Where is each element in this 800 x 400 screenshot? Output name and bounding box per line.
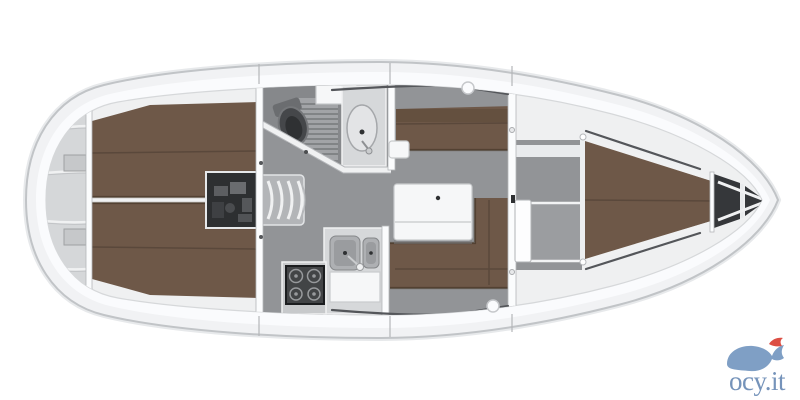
bulkhead-fitting <box>510 270 515 275</box>
salon-side-locker <box>389 141 409 158</box>
aft-door-handle-starboard <box>259 235 263 239</box>
bathroom-sink <box>347 105 377 151</box>
forward-door-latch <box>511 195 515 203</box>
anchor-bulkhead <box>710 172 714 232</box>
bulkhead-stern <box>86 88 92 312</box>
cleat-notch-starboard <box>487 300 499 312</box>
bulkhead-fitting <box>510 128 515 133</box>
berth-step <box>527 203 583 261</box>
red-fish-icon <box>769 338 783 347</box>
aft-door-handle-port <box>259 161 263 165</box>
stove <box>286 266 324 304</box>
yacht-floor-plan: ocy.it <box>0 0 800 400</box>
v-berth-trim <box>580 138 585 262</box>
bulkhead-main <box>256 84 263 316</box>
engine-compartment <box>206 172 258 228</box>
galley-front-panel <box>330 272 380 302</box>
galley-right-wall <box>382 226 389 316</box>
bathroom-door-handle <box>304 150 308 154</box>
settee-port-backrest <box>396 109 513 122</box>
salon-table <box>394 184 472 244</box>
companionway-steps <box>258 175 305 225</box>
stern-locker-box <box>64 229 86 245</box>
cleat-notch-port <box>462 82 474 94</box>
stern-locker-box <box>64 155 86 171</box>
forward-cabin-lockers <box>516 145 582 157</box>
forward-cabin-door <box>515 200 531 262</box>
logo-text: ocy.it <box>729 366 786 396</box>
sink-drain <box>360 130 365 135</box>
logo: ocy.it <box>727 338 786 396</box>
table-fitting <box>436 196 440 200</box>
